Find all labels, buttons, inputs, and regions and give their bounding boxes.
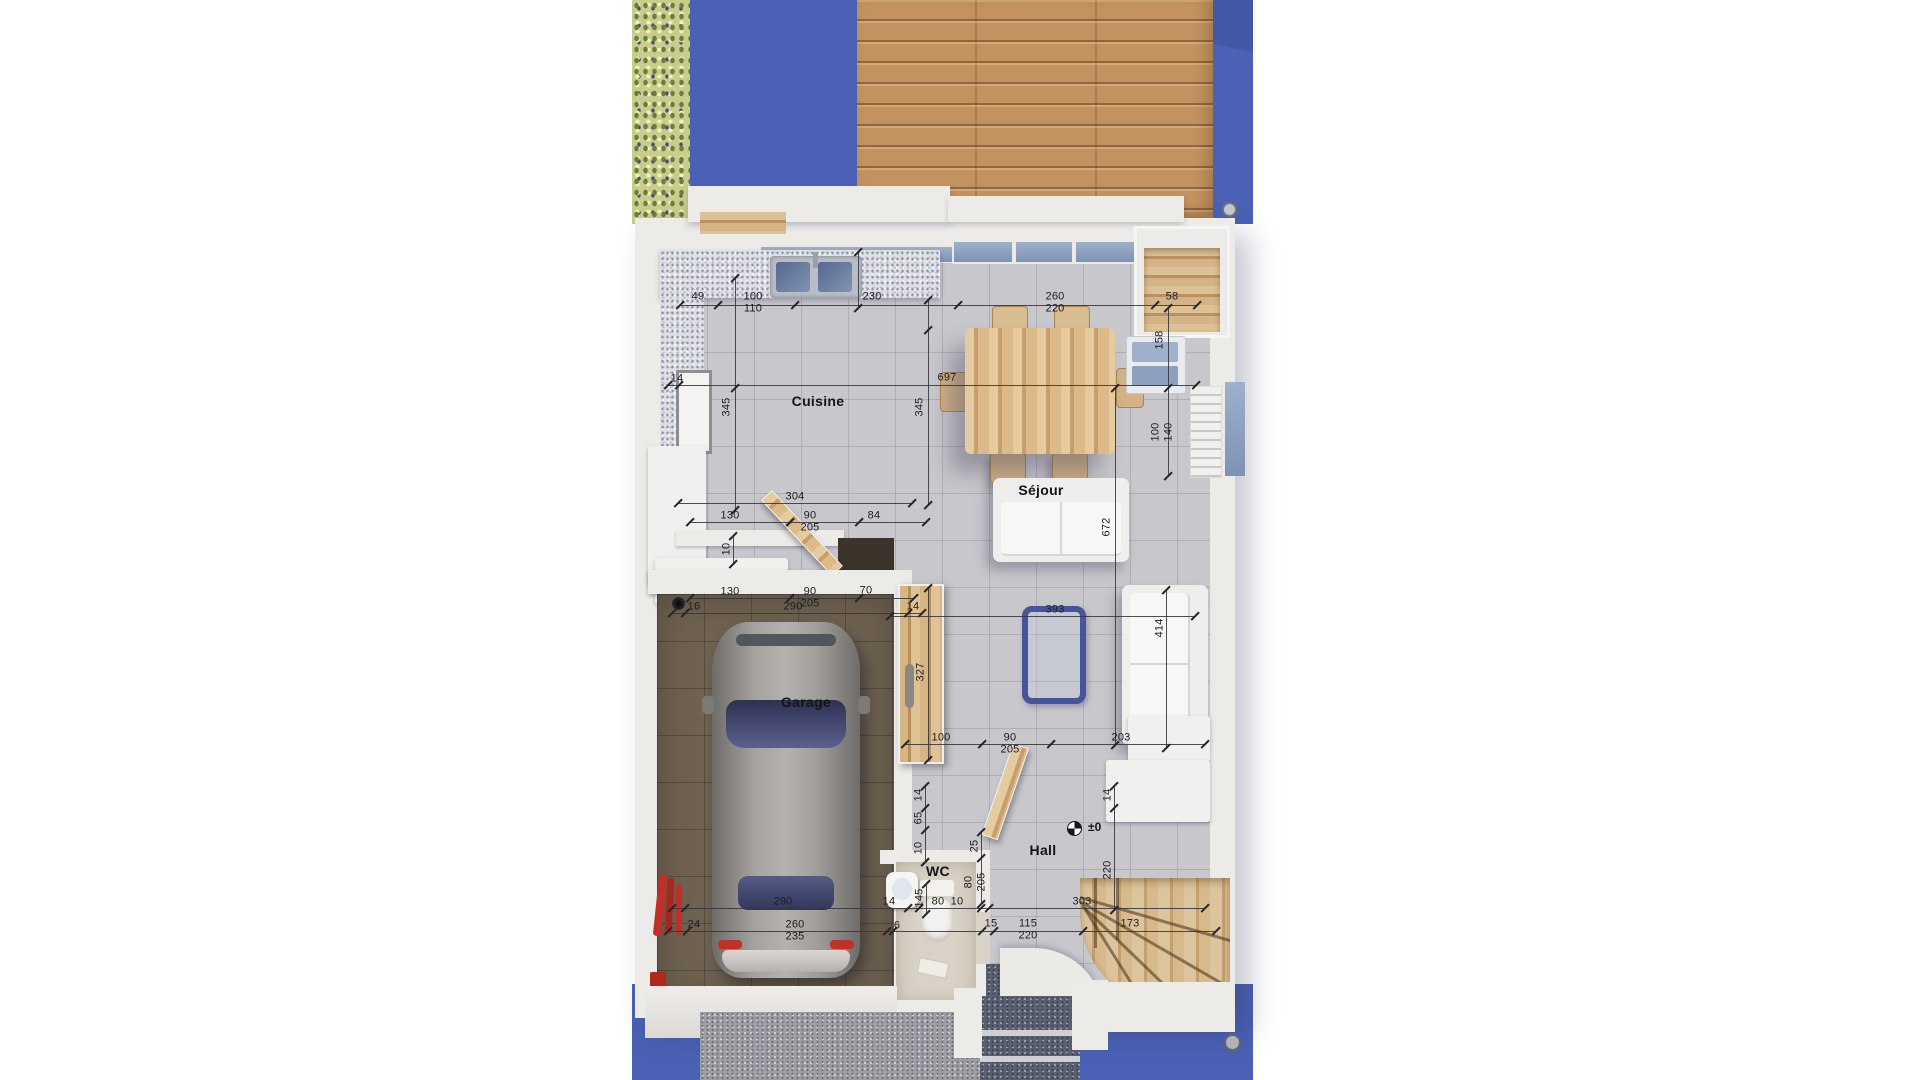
cabinet-blue-panel	[1132, 342, 1178, 362]
porch-slab-right	[1102, 982, 1235, 1032]
entry-step-edge	[980, 1056, 1080, 1062]
gutter-downpipe	[1222, 202, 1237, 217]
car-rear-spoiler-glass	[736, 634, 836, 646]
sofa-vertical-divider	[1130, 663, 1188, 665]
wc-toilet-bowl	[922, 898, 952, 942]
side-window-glass	[1222, 382, 1245, 476]
wc-door-opening	[976, 912, 990, 964]
garage-top-wall	[648, 570, 898, 594]
car-taillight	[830, 940, 854, 949]
entry-side-wall-left	[954, 988, 982, 1058]
sofa-horizontal-divider	[1060, 502, 1062, 554]
wc-sink-bowl	[892, 878, 912, 900]
hall-console-board	[1128, 716, 1210, 762]
floor-plan-stage: ±0 4910011023026022058146973453451581001…	[0, 0, 1920, 1080]
car-windshield	[726, 700, 846, 748]
hedge-strip	[632, 0, 690, 224]
car-mirror	[702, 696, 714, 714]
sink-faucet	[813, 252, 818, 268]
wc-toilet-tank	[920, 880, 954, 896]
car-body	[712, 622, 860, 978]
coffee-table-blue	[1022, 606, 1086, 704]
sink-basin-right	[818, 262, 852, 292]
cabinet-blue-panel	[1132, 366, 1178, 386]
hall-console-desk	[1106, 760, 1210, 822]
canopy-right	[948, 196, 1184, 222]
car-taillight	[718, 940, 742, 949]
ground-pipe	[1224, 1034, 1241, 1051]
dining-table	[965, 328, 1115, 454]
kitchen-wall-window	[676, 370, 712, 454]
garage-floor-drain	[672, 597, 685, 610]
sliding-door-mullion	[1012, 240, 1016, 262]
wall-pipe-red	[676, 884, 682, 934]
terrace-sliding-door	[952, 240, 1140, 264]
entry-step-edge	[980, 1030, 1080, 1036]
canopy-left-soffit	[700, 212, 786, 234]
sliding-door-mullion	[1072, 240, 1076, 262]
window-shutter	[1190, 386, 1222, 478]
sink-basin-left	[776, 262, 810, 292]
car-mirror	[858, 696, 870, 714]
car-rear-window	[738, 876, 834, 910]
dining-chair	[940, 372, 968, 412]
closet-niche-wood	[1144, 248, 1220, 332]
car-bumper	[722, 950, 850, 972]
sliding-door-handle	[905, 664, 914, 708]
entry-steps	[980, 996, 1080, 1080]
